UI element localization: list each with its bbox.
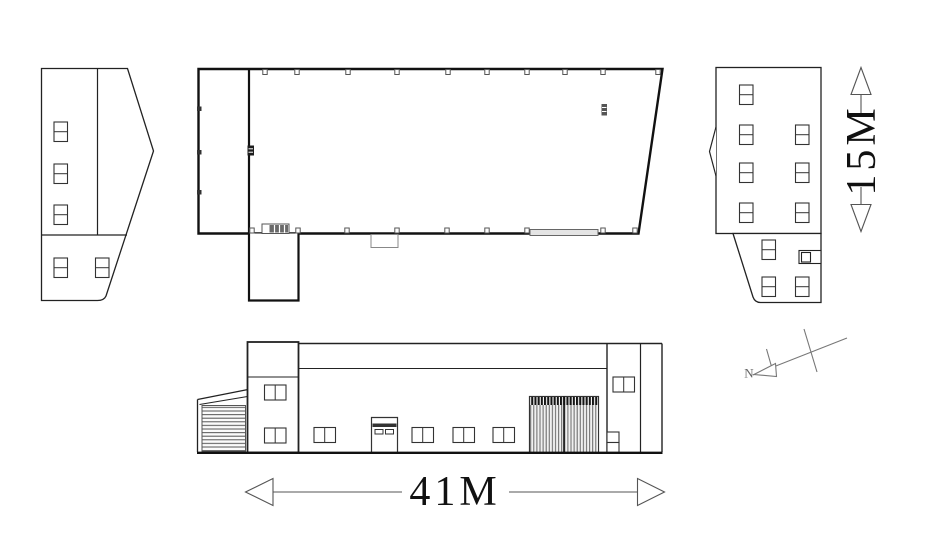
right-elevation-hatch — [799, 251, 821, 264]
window — [796, 277, 810, 297]
shutter-annex — [198, 390, 249, 453]
north-arrowhead-icon — [754, 364, 777, 377]
window — [54, 258, 68, 278]
roller-shutter-door — [202, 406, 246, 452]
window — [796, 125, 810, 145]
architectural-drawing-sheet: 41M 15M N — [0, 0, 950, 537]
plan-interior-marker — [602, 104, 608, 116]
step-box — [607, 443, 619, 453]
left-side-elevation-view — [42, 69, 154, 301]
plan-outline — [199, 69, 663, 234]
window — [54, 205, 68, 225]
window — [493, 428, 515, 443]
window — [762, 277, 776, 297]
right-side-elevation-view — [710, 68, 822, 303]
window — [265, 385, 287, 400]
north-arrow — [753, 329, 847, 377]
plan-canopy — [371, 235, 398, 248]
window — [453, 428, 475, 443]
sliding-door — [530, 397, 599, 453]
window — [796, 163, 810, 183]
plan-stairs — [262, 224, 289, 234]
left-tower — [248, 342, 299, 453]
width-dimension-label: 41M — [409, 471, 500, 513]
plan-door-ramp-strip — [530, 230, 598, 236]
plan-annex-outline — [249, 234, 299, 301]
window — [265, 428, 287, 443]
front-elevation-view — [197, 342, 663, 453]
plan-view — [197, 69, 663, 301]
height-dimension-label: 15M — [841, 104, 883, 195]
window — [412, 428, 434, 443]
window — [740, 163, 754, 183]
dimension-arrow-down-icon — [851, 205, 871, 232]
window — [740, 125, 754, 145]
window — [314, 428, 336, 443]
window — [54, 122, 68, 142]
plan-door-marker — [248, 146, 255, 156]
right-elevation-ridge-point — [710, 127, 717, 176]
window — [613, 377, 635, 392]
window — [762, 240, 776, 260]
window — [740, 85, 754, 105]
window — [796, 203, 810, 223]
drawing-linework — [0, 0, 950, 537]
north-label: N — [744, 367, 753, 380]
entrance-door — [372, 418, 398, 453]
dimension-arrow-right-icon — [638, 479, 665, 506]
window — [740, 203, 754, 223]
window — [54, 164, 68, 184]
dimension-arrow-left-icon — [246, 479, 274, 506]
right-tower — [607, 344, 662, 453]
window — [96, 258, 110, 278]
dimension-arrow-up-icon — [851, 68, 871, 95]
step-box — [607, 432, 619, 443]
